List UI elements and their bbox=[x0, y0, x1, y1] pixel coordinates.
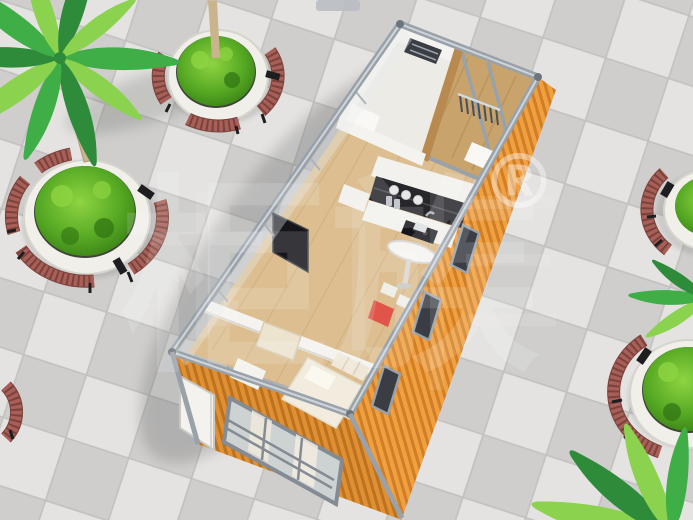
corner-fitting bbox=[396, 20, 404, 28]
registered-trademark-symbol: ® bbox=[481, 137, 557, 226]
watermark-brand-text: 柜族 bbox=[120, 157, 540, 402]
palm-crown-center bbox=[54, 52, 66, 64]
shrub-highlight bbox=[93, 181, 111, 199]
shrub-highlight bbox=[658, 362, 678, 382]
shrub-highlight bbox=[51, 185, 73, 207]
shrub-shade bbox=[94, 218, 114, 238]
distant-table bbox=[316, 0, 360, 11]
shrub-shade bbox=[663, 403, 681, 421]
scene-render: 柜族 ® bbox=[0, 0, 693, 520]
shrub-shade bbox=[224, 72, 240, 88]
watermark: 柜族 ® bbox=[120, 137, 557, 402]
shrub-highlight bbox=[191, 51, 209, 69]
render-canvas: 柜族 ® bbox=[0, 0, 693, 520]
shrub-highlight bbox=[219, 47, 233, 61]
corner-fitting bbox=[534, 73, 542, 81]
shrub-shade bbox=[61, 227, 79, 245]
